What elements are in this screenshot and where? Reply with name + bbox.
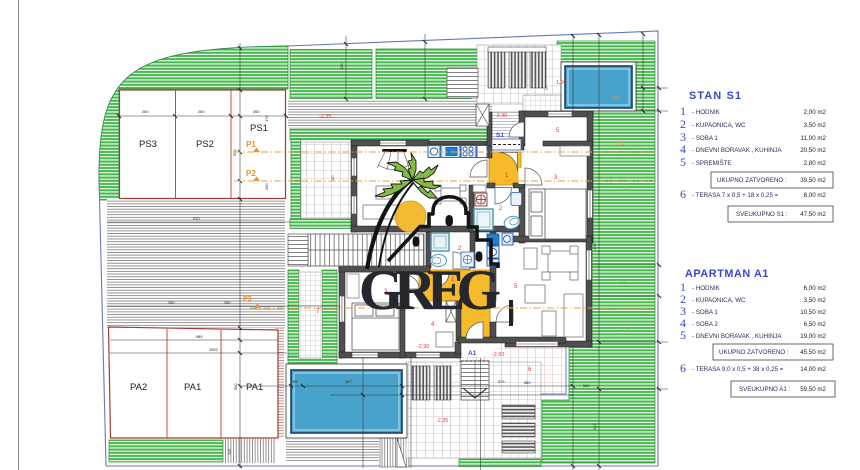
svg-text:P3: P3 <box>243 296 252 303</box>
svg-text:19,00 m2: 19,00 m2 <box>800 333 826 340</box>
svg-text:-2,35: -2,35 <box>436 418 448 424</box>
svg-text:UKUPNO ZATVORENO :: UKUPNO ZATVORENO : <box>717 177 787 184</box>
svg-text:59,50 m2: 59,50 m2 <box>800 386 826 393</box>
svg-text:- DNEVNI BORAVAK , KUHINJA: - DNEVNI BORAVAK , KUHINJA <box>692 333 782 340</box>
svg-text:5: 5 <box>680 155 686 169</box>
svg-text:989: 989 <box>196 334 203 339</box>
svg-text:STAN S1: STAN S1 <box>689 90 742 102</box>
svg-text:260: 260 <box>142 109 149 114</box>
svg-text:APARTMAN A1: APARTMAN A1 <box>685 268 769 280</box>
svg-text:197: 197 <box>345 379 352 384</box>
svg-text:14,00 m2: 14,00 m2 <box>800 366 826 373</box>
svg-text:-2,90: -2,90 <box>417 344 429 350</box>
svg-text:2,50: 2,50 <box>616 141 625 146</box>
svg-text:4: 4 <box>680 142 686 156</box>
svg-text:3,20: 3,20 <box>618 278 627 283</box>
svg-text:65: 65 <box>293 379 297 384</box>
svg-text:580: 580 <box>524 380 531 385</box>
svg-text:425: 425 <box>339 64 344 71</box>
svg-text:575: 575 <box>498 379 505 384</box>
svg-text:PS1: PS1 <box>250 123 268 134</box>
svg-text:-2,35: -2,35 <box>319 114 331 120</box>
svg-text:-2,90: -2,90 <box>495 113 507 119</box>
svg-text:SVEUKUPNO A1 :: SVEUKUPNO A1 : <box>739 386 791 393</box>
svg-text:- TERASA 7 x 0,5 + 18 x 0,2: - TERASA 7 x 0,5 + 18 x 0,25 = <box>692 192 779 199</box>
svg-text:- SOBA 1: - SOBA 1 <box>692 309 718 316</box>
svg-text:260: 260 <box>224 300 231 305</box>
svg-text:-2,90: -2,90 <box>492 352 504 358</box>
svg-text:115: 115 <box>227 449 232 455</box>
svg-text:6,50 m2: 6,50 m2 <box>804 321 827 328</box>
svg-text:500: 500 <box>233 383 238 390</box>
svg-text:3,50 m2: 3,50 m2 <box>804 297 827 304</box>
svg-text:6: 6 <box>680 361 686 375</box>
svg-text:PA1: PA1 <box>184 382 201 393</box>
svg-text:3,50 m2: 3,50 m2 <box>804 122 827 129</box>
svg-text:PA1: PA1 <box>246 382 263 393</box>
svg-text:1053: 1053 <box>209 347 218 352</box>
svg-text:SVEUKUPNO S1 :: SVEUKUPNO S1 : <box>736 211 788 218</box>
svg-text:1,50: 1,50 <box>622 328 631 333</box>
svg-text:260: 260 <box>198 109 205 114</box>
svg-text:- SOBA 1: - SOBA 1 <box>692 135 718 142</box>
svg-text:- KUPAONICA, WC: - KUPAONICA, WC <box>692 122 746 129</box>
svg-text:45,50 m2: 45,50 m2 <box>800 349 826 356</box>
svg-text:- HODNIK: - HODNIK <box>692 285 721 292</box>
svg-text:S1: S1 <box>496 132 504 139</box>
svg-text:A1: A1 <box>468 350 477 357</box>
svg-text:5,75: 5,75 <box>620 186 629 191</box>
svg-text:PS2: PS2 <box>196 139 214 150</box>
svg-text:2,00 m2: 2,00 m2 <box>804 109 827 116</box>
svg-text:260: 260 <box>168 300 175 305</box>
svg-text:2,80 m2: 2,80 m2 <box>804 160 827 167</box>
svg-text:39,50 m2: 39,50 m2 <box>800 177 826 184</box>
svg-text:- SOBA 2: - SOBA 2 <box>692 321 718 328</box>
svg-text:6: 6 <box>680 187 686 201</box>
svg-text:- HODNIK: - HODNIK <box>692 109 721 116</box>
svg-text:910: 910 <box>193 216 200 221</box>
svg-text:2: 2 <box>680 117 686 131</box>
svg-text:6,00 m2: 6,00 m2 <box>804 285 827 292</box>
svg-text:415: 415 <box>592 424 597 431</box>
svg-text:PA2: PA2 <box>130 382 147 393</box>
svg-text:1: 1 <box>680 104 686 118</box>
svg-text:- DNEVNI BORAVAK , KUHINJA: - DNEVNI BORAVAK , KUHINJA <box>692 147 782 154</box>
svg-text:- TERASA 9,0 x 0,5 + 38 x 0,: - TERASA 9,0 x 0,5 + 38 x 0,25 = <box>692 366 784 373</box>
svg-text:P1: P1 <box>246 140 256 149</box>
svg-text:1,00: 1,00 <box>612 95 621 100</box>
svg-text:260: 260 <box>253 109 260 114</box>
svg-text:5: 5 <box>545 86 548 92</box>
svg-text:565: 565 <box>583 383 590 388</box>
svg-text:- KUPAONICA, WC: - KUPAONICA, WC <box>692 297 746 304</box>
svg-text:410: 410 <box>592 243 597 250</box>
svg-text:170: 170 <box>264 115 269 122</box>
svg-text:8,00 m2: 8,00 m2 <box>804 192 827 199</box>
svg-text:UKUPNO ZATVORENO :: UKUPNO ZATVORENO : <box>719 349 789 356</box>
svg-text:20,50 m2: 20,50 m2 <box>800 147 826 154</box>
svg-text:47,50 m2: 47,50 m2 <box>800 211 826 218</box>
svg-text:5: 5 <box>680 328 686 342</box>
svg-text:10,50 m2: 10,50 m2 <box>800 309 826 316</box>
svg-text:PS3: PS3 <box>139 139 157 150</box>
svg-text:11,00 m2: 11,00 m2 <box>801 135 827 142</box>
svg-text:GREG: GREG <box>359 259 501 322</box>
svg-text:1,00: 1,00 <box>556 80 567 86</box>
svg-text:- SPREMIŠTE: - SPREMIŠTE <box>692 160 732 167</box>
svg-text:P2: P2 <box>246 169 256 178</box>
svg-text:400: 400 <box>264 183 269 190</box>
